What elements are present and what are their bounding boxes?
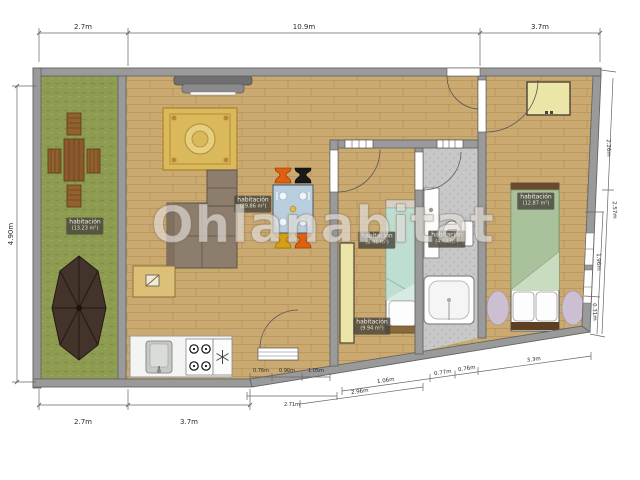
dim-right-inner1: 1.96m — [595, 253, 602, 271]
bedroom-wardrobe — [527, 82, 570, 115]
room-name: habitación — [361, 233, 392, 240]
floor-plan-canvas: 2.7m 10.9m 3.7m 4.90m 2.7m 3.7m 0.76m 0.… — [0, 0, 640, 480]
room-area: (8.41 m²) — [361, 241, 392, 247]
dim-slant-seg4: 3.3m — [526, 356, 541, 364]
floor-plan-drawing: 2.7m 10.9m 3.7m 4.90m 2.7m 3.7m 0.76m 0.… — [0, 0, 640, 480]
oval-rug-right — [562, 291, 584, 325]
room-label-small-bedroom: habitación (8.41 m²) — [358, 232, 395, 249]
room-name: habitación — [69, 219, 100, 226]
tv-console — [174, 76, 252, 95]
dim-kitchen-seg1: 0.76m — [253, 368, 269, 374]
dim-kitchen-total: 2.71m — [284, 402, 300, 408]
area-rug — [163, 108, 237, 170]
room-name: habitación — [237, 197, 268, 204]
window-right-lower — [583, 270, 593, 303]
room-area: (13.23 m²) — [69, 227, 100, 233]
room-area: (12.87 m²) — [520, 202, 551, 208]
bathroom-vanity — [424, 188, 439, 258]
dim-top-middle: 10.9m — [293, 23, 316, 31]
room-name: habitación — [431, 232, 462, 239]
dim-kitchen-seg3: 1.05m — [308, 368, 324, 374]
bathroom-door — [415, 152, 423, 190]
entrance-door-top — [447, 68, 480, 76]
dim-top-right: 3.7m — [531, 23, 549, 31]
single-bed — [386, 200, 419, 333]
room-label-bathroom: habitación (4.43 m²) — [428, 231, 465, 248]
wall-terrace-partition — [118, 76, 126, 379]
window-right-upper — [585, 233, 594, 265]
dim-right-outer2: 2.57m — [611, 201, 618, 219]
dim-bottom-middle: 3.7m — [180, 418, 198, 426]
wall-bottom-left — [33, 379, 252, 387]
radiator-small-bedroom — [345, 140, 373, 148]
stove — [186, 339, 213, 375]
dim-right-outer1: 2.26m — [605, 139, 612, 157]
room-label-corridor: habitación (9.94 m²) — [353, 318, 390, 335]
room-area: (4.43 m²) — [431, 240, 462, 246]
small-bedroom-door — [330, 150, 338, 192]
terrace-chair-bottom — [67, 185, 81, 207]
room-label-bedroom: habitación (12.87 m²) — [517, 193, 554, 210]
dim-kitchen-seg2: 0.90m — [279, 368, 295, 374]
room-area: (29.86 m²) — [237, 205, 268, 211]
bedroom-door — [478, 80, 486, 132]
dim-right-inner2: 0.31m — [591, 303, 598, 321]
dim-bottom-left: 2.7m — [74, 418, 92, 426]
kitchen-counter — [130, 336, 232, 377]
room-label-terrace: habitación (13.23 m²) — [66, 218, 103, 235]
terrace-parasol — [52, 256, 106, 360]
wall-top — [33, 68, 601, 76]
wall-left — [33, 68, 41, 388]
desk — [133, 266, 175, 297]
bathtub — [424, 276, 474, 324]
extractor-fan-icon — [213, 339, 232, 375]
room-name: habitación — [356, 319, 387, 326]
dim-left-height: 4.90m — [7, 223, 15, 246]
room-name: habitación — [520, 194, 551, 201]
room-label-living: habitación (29.86 m²) — [234, 196, 271, 213]
oval-rug-left — [487, 291, 509, 325]
kitchen-sink — [146, 341, 172, 373]
small-bedroom-wardrobe — [340, 243, 354, 343]
room-area: (9.94 m²) — [356, 327, 387, 333]
terrace-chair-top — [67, 113, 81, 135]
dim-slant-seg3: 0.76m — [458, 365, 476, 373]
dim-top-left: 2.7m — [74, 23, 92, 31]
radiator-bathroom — [437, 140, 463, 148]
